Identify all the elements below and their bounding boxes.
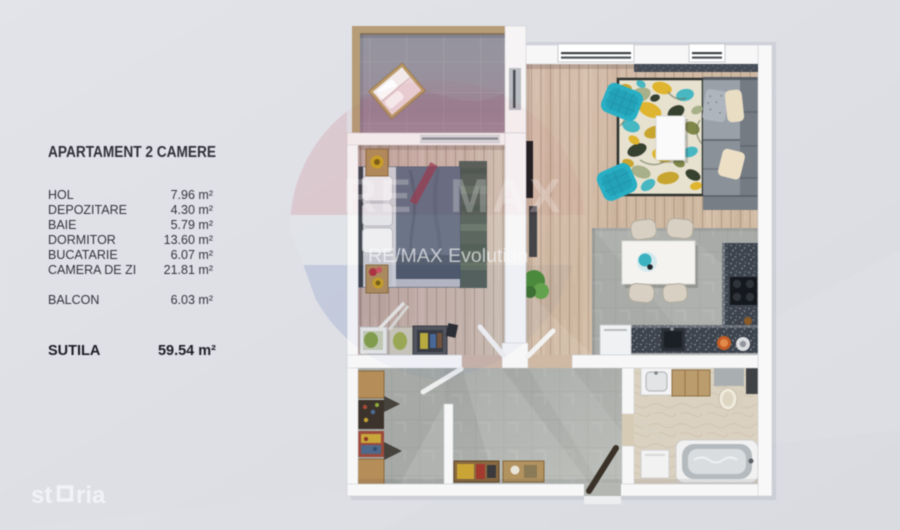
- svg-text:DORMITOR: DORMITOR: [48, 233, 116, 247]
- svg-text:RE/MAX Evolution: RE/MAX Evolution: [368, 245, 528, 267]
- svg-text:RE: RE: [343, 169, 414, 222]
- svg-text:4.30 m²: 4.30 m²: [171, 203, 213, 217]
- svg-text:6.03 m²: 6.03 m²: [171, 293, 213, 307]
- svg-text:7.96 m²: 7.96 m²: [171, 188, 213, 202]
- svg-text:59.54 m²: 59.54 m²: [158, 343, 216, 359]
- svg-text:SUTILA: SUTILA: [48, 343, 101, 359]
- svg-text:ria: ria: [76, 482, 106, 509]
- svg-text:BUCATARIE: BUCATARIE: [48, 248, 118, 262]
- svg-text:MAX: MAX: [450, 169, 563, 222]
- svg-text:HOL: HOL: [48, 188, 74, 202]
- svg-text:5.79 m²: 5.79 m²: [171, 218, 213, 232]
- svg-text:21.81 m²: 21.81 m²: [164, 263, 213, 277]
- svg-text:DEPOZITARE: DEPOZITARE: [48, 203, 127, 217]
- svg-text:BALCON: BALCON: [48, 293, 99, 307]
- svg-text:APARTAMENT 2 CAMERE: APARTAMENT 2 CAMERE: [48, 144, 216, 161]
- svg-text:st: st: [31, 482, 52, 509]
- svg-text:BAIE: BAIE: [48, 218, 77, 232]
- svg-text:CAMERA DE ZI: CAMERA DE ZI: [48, 263, 136, 277]
- svg-text:6.07 m²: 6.07 m²: [171, 248, 213, 262]
- svg-text:13.60 m²: 13.60 m²: [164, 233, 213, 247]
